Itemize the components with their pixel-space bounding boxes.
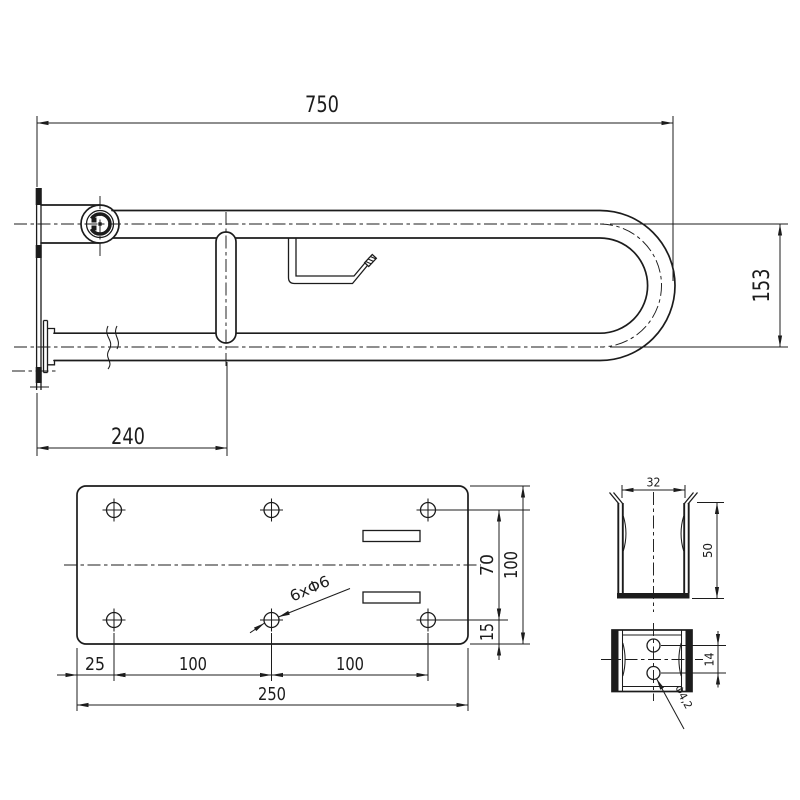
dim-240: 240 (37, 362, 227, 456)
hole (260, 609, 283, 632)
toilet-roll-holder (289, 238, 377, 284)
dim-100-height-label: 100 (501, 551, 522, 579)
dim-70-label: 70 (477, 554, 498, 576)
hole (260, 499, 283, 522)
dim-15-label: 15 (477, 623, 498, 641)
hole (417, 499, 440, 522)
grab-bar-side-view: 750 153 240 (12, 93, 788, 456)
clamp-side-view: 32 50 (610, 475, 725, 613)
dim-14: 14 (661, 631, 726, 688)
holder-end-cap (365, 254, 377, 266)
wall-flange (44, 321, 55, 373)
dim-100-right-label: 100 (336, 654, 364, 675)
hole (103, 499, 126, 522)
wall-plate (30, 188, 49, 390)
dim-50: 50 (692, 503, 724, 599)
dim-25-label: 25 (85, 654, 105, 675)
mounting-plate-view: 6xΦ6 25 100 100 250 7 (57, 486, 530, 711)
drawing-canvas: 750 153 240 (0, 0, 800, 800)
dim-153: 153 (610, 224, 788, 347)
dim-240-label: 240 (111, 425, 145, 450)
clamp-front-body (612, 630, 692, 692)
clamp-front-view: 14 Φ4,2 (601, 623, 726, 729)
plate-slots (363, 531, 420, 604)
dim-250-label: 250 (258, 684, 286, 705)
dim-100-left-label: 100 (179, 654, 207, 675)
dim-750-label: 750 (305, 93, 339, 118)
dim-14-label: 14 (702, 652, 717, 666)
dim-32-label: 32 (647, 475, 661, 490)
dim-50-label: 50 (700, 543, 715, 558)
hole (417, 609, 440, 632)
grab-bar-tube (54, 211, 675, 361)
holes-callout-label: 6xΦ6 (287, 572, 333, 606)
plate-right-dims: 70 100 15 (437, 486, 530, 660)
dim-750: 750 (37, 93, 673, 281)
hole (103, 609, 126, 632)
technical-drawing: 750 153 240 (0, 0, 800, 800)
dim-153-label: 153 (750, 269, 775, 303)
